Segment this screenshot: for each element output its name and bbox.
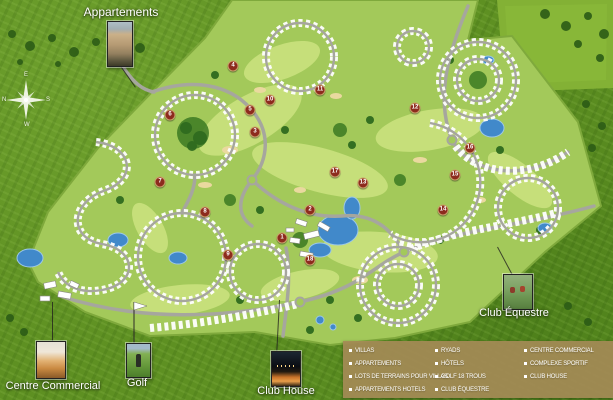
appartements-photo [107,21,133,67]
compass-letter-top: E [24,72,28,78]
legend-bullet-icon [349,362,352,365]
legend-bullet-icon [435,349,438,352]
golf-hole-marker: 16 [465,143,476,154]
golf-hole-marker: 14 [438,205,449,216]
legend-bullet-icon [524,349,527,352]
legend-item: RYADS [435,344,523,357]
golf-hole-marker: 17 [330,167,341,178]
resort-masterplan-map: 123456789101112131415161718 E S W N Appa… [0,0,613,400]
legend-item-label: COMPLEXE SPORTIF [530,361,588,367]
compass-rose: E S W N [2,72,50,128]
legend-item-label: APPARTEMENTS HOTELS [355,387,425,393]
golf-hole-marker: 1 [277,233,288,244]
legend-item-label: GOLF 18 TROUS [441,374,486,380]
legend-item: GOLF 18 TROUS [435,370,523,383]
golf-hole-marker: 9 [223,250,234,261]
golf-hole-marker: 2 [305,205,316,216]
legend-item-label: APPARTEMENTS [355,361,401,367]
legend-bullet-icon [435,362,438,365]
golf-hole-marker: 11 [315,85,326,96]
club-equestre-photo [503,274,533,310]
golf-hole-marker: 13 [358,178,369,189]
legend-item: HÔTELS [435,357,523,370]
legend-item: CLUB HOUSE [524,370,612,383]
legend-column: CENTRE COMMERCIALCOMPLEXE SPORTIFCLUB HO… [524,344,612,383]
golf-hole-marker: 6 [165,110,176,121]
golf-hole-marker: 5 [245,105,256,116]
legend-item: APPARTEMENTS [349,357,435,370]
legend-bullet-icon [435,375,438,378]
golf-hole-marker: 15 [450,170,461,181]
legend-bullet-icon [349,375,352,378]
legend-bullet-icon [349,349,352,352]
compass-letter-left: N [2,97,6,103]
legend-column: VILLASAPPARTEMENTSLOTS DE TERRAINS POUR … [349,344,435,396]
legend-item: CLUB ÉQUESTRE [435,383,523,396]
leader-line-centre-commercial [52,302,53,341]
label-appartements: Appartements [84,5,159,19]
legend-item-label: CLUB ÉQUESTRE [441,387,489,393]
legend-bullet-icon [435,388,438,391]
compass-letter-right: S [46,97,50,103]
legend-item-label: VILLAS [355,348,374,354]
legend-item: LOTS DE TERRAINS POUR VILLAS [349,370,435,383]
legend-item: CENTRE COMMERCIAL [524,344,612,357]
legend-item-label: CLUB HOUSE [530,374,567,380]
legend-bullet-icon [524,362,527,365]
legend-bullet-icon [349,388,352,391]
compass-letter-bottom: W [24,122,30,128]
compass-star-icon [2,72,50,128]
legend-panel: VILLASAPPARTEMENTSLOTS DE TERRAINS POUR … [343,341,613,398]
club-house-lights [277,365,295,367]
golf-hole-marker: 3 [250,127,261,138]
label-club-equestre: Club Équestre [479,307,549,319]
legend-item-label: HÔTELS [441,361,464,367]
legend-column: RYADSHÔTELSGOLF 18 TROUSCLUB ÉQUESTRE [435,344,523,396]
label-club-house: Club House [257,385,314,397]
club-house-photo [271,351,301,387]
legend-item: COMPLEXE SPORTIF [524,357,612,370]
golf-photo [126,343,151,378]
golfer-figure [136,354,141,367]
golf-hole-marker: 4 [228,61,239,72]
golf-hole-marker: 18 [305,255,316,266]
legend-item: APPARTEMENTS HOTELS [349,383,435,396]
legend-item: VILLAS [349,344,435,357]
golf-hole-marker: 8 [200,207,211,218]
hole-markers-layer: 123456789101112131415161718 [0,0,613,400]
label-golf: Golf [127,377,147,389]
legend-item-label: CENTRE COMMERCIAL [530,348,594,354]
legend-bullet-icon [524,375,527,378]
golf-hole-marker: 12 [410,103,421,114]
label-centre-commercial: Centre Commercial [6,380,101,392]
golf-hole-marker: 10 [265,95,276,106]
rider-figure [510,287,515,293]
golf-hole-marker: 7 [155,177,166,188]
legend-item-label: RYADS [441,348,460,354]
rider-figure [520,286,525,292]
centre-commercial-photo [36,341,66,379]
